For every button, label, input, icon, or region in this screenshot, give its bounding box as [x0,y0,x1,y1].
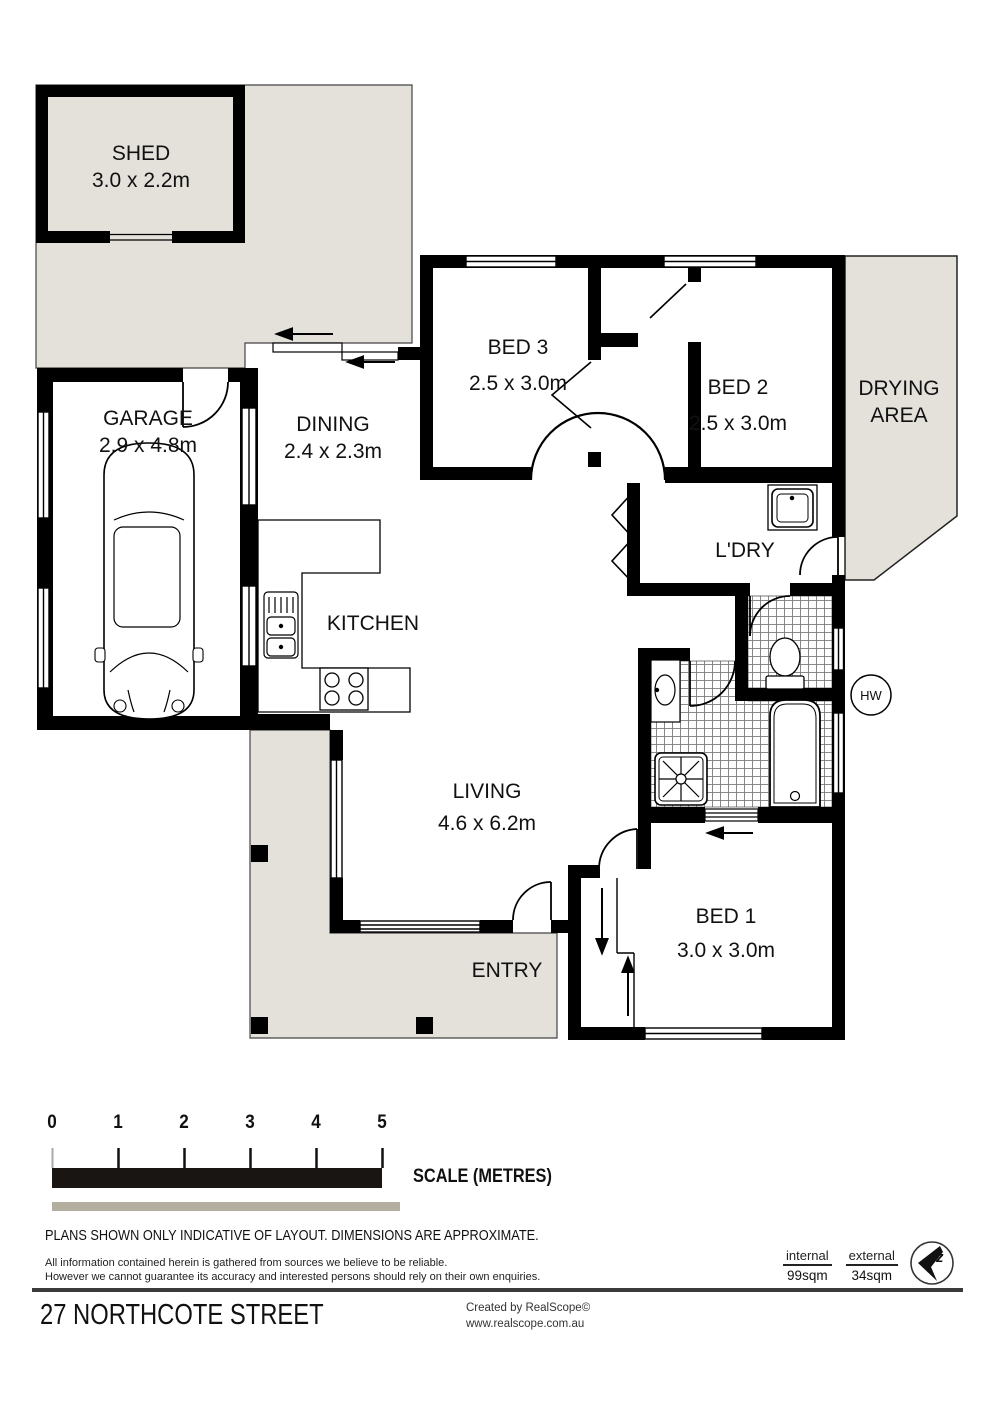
porch-post [416,1017,433,1034]
window-bed2 [664,256,756,267]
external-area-value: 34sqm [846,1266,898,1283]
disclaimer-line-1: All information contained herein is gath… [45,1256,540,1270]
credit-line-2: www.realscope.com.au [466,1317,590,1333]
hw-label: HW [860,688,882,703]
scale-tick-label: 3 [237,1112,264,1134]
porch-post [251,845,268,862]
bed2-label: BED 2 [708,376,769,399]
sliding-door-dining [273,343,398,360]
laundry-label: L'DRY [715,539,775,562]
bathtub-icon [770,700,820,807]
entry-label: ENTRY [472,959,543,982]
disclaimer-text: All information contained herein is gath… [45,1256,540,1285]
internal-area-label: internal [783,1248,832,1266]
garage-dims: 2.9 x 4.8m [99,434,197,457]
plans-note: PLANS SHOWN ONLY INDICATIVE OF LAYOUT. D… [45,1228,539,1244]
sliding-door-bathroom [705,809,758,821]
floorplan-page: SHED 3.0 x 2.2m GARAGE 2.9 x 4.8m DINING… [0,0,1000,1415]
vanity-icon [651,660,680,722]
window-garage-east [242,408,256,505]
property-address: 27 NORTHCOTE STREET [40,1299,324,1332]
window-living-south [360,921,480,932]
car-icon [95,443,203,719]
kitchen-label: KITCHEN [327,612,419,635]
door-drying [800,537,838,575]
drying-label-1: DRYING [858,377,939,400]
kitchen-sink-icon [264,592,298,658]
realscope-logo-icon: z [906,1238,958,1290]
bed2-dims: 2.5 x 3.0m [689,412,787,435]
robe-arrow-down [597,888,608,953]
window-garage-west [38,412,49,518]
shed-label: SHED [112,142,170,165]
external-area-label: external [846,1248,898,1266]
bed3-dims: 2.5 x 3.0m [469,372,567,395]
shed-dims: 3.0 x 2.2m [92,169,190,192]
robe-arrow-up [623,958,634,1016]
dining-label: DINING [296,413,370,436]
footer-divider [32,1288,963,1292]
scale-tick-label: 0 [39,1112,66,1134]
internal-area-col: internal 99sqm [783,1248,832,1283]
drying-label-2: AREA [870,404,927,427]
entry-porch-area [250,730,557,1038]
window-garage-west [38,588,49,688]
living-dims: 4.6 x 6.2m [438,812,536,835]
credit-text: Created by RealScope© www.realscope.com.… [466,1301,590,1332]
stove-icon [320,668,368,710]
door-entry [513,882,551,920]
window-bed3 [466,256,556,267]
external-area-col: external 34sqm [846,1248,898,1283]
door-bed1 [599,829,637,869]
living-label: LIVING [453,780,522,803]
scale-tick-label: 2 [171,1112,198,1134]
sliding-arrow [708,828,753,839]
bed3-label: BED 3 [488,336,549,359]
patio-area [36,85,412,368]
svg-text:z: z [935,1249,944,1266]
bed1-label: BED 1 [696,905,757,928]
internal-area-value: 99sqm [783,1266,832,1283]
scale-caption: SCALE (METRES) [413,1166,552,1188]
scale-tick-label: 5 [369,1112,396,1134]
credit-line-1: Created by RealScope© [466,1301,590,1317]
door-bed2 [650,284,686,318]
areas-table: internal 99sqm external 34sqm [783,1248,898,1283]
window-bath [834,713,844,793]
garage-label: GARAGE [103,407,193,430]
bed1-robe [617,878,634,1027]
arch-hallway [531,413,665,480]
bed1-dims: 3.0 x 3.0m [677,939,775,962]
window-bed1 [645,1028,762,1039]
dining-dims: 2.4 x 2.3m [284,440,382,463]
porch-post [251,1017,268,1034]
window-garage-east [242,586,256,666]
laundry-tub-icon [768,485,817,530]
scale-tick-label: 1 [105,1112,132,1134]
shower-icon [655,753,707,805]
window-wc [834,628,844,670]
disclaimer-line-2: However we cannot guarantee its accuracy… [45,1270,540,1284]
window-living-west [331,760,342,878]
floorplan-drawing: SHED 3.0 x 2.2m GARAGE 2.9 x 4.8m DINING… [0,0,1000,1100]
scale-tick-label: 4 [303,1112,330,1134]
